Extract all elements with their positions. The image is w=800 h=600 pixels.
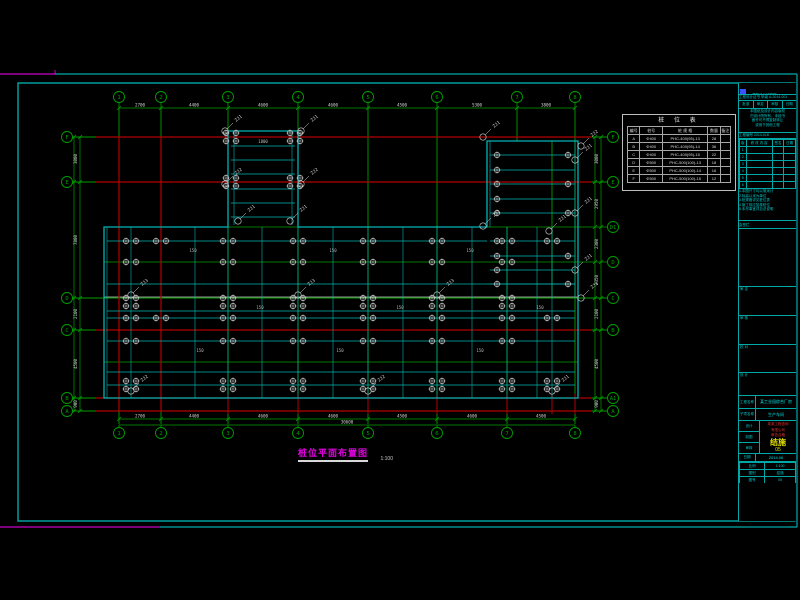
svg-text:E: E [611,180,614,186]
svg-text:D: D [611,260,614,266]
svg-text:30600: 30600 [341,420,354,425]
pile-table-cell: 22 [708,151,720,159]
role-box: 校 对 [739,345,796,373]
approval-cells: 批准审定审核日期 [739,101,796,109]
svg-text:ZJ1: ZJ1 [584,253,594,263]
role-box: 审 核 [739,316,796,345]
revision-cell [746,147,772,154]
svg-text:2: 2 [159,95,162,101]
pile-table-cell: 桩 规 格 [663,127,708,135]
svg-text:1: 1 [117,95,120,101]
pile-table-cell: Φ500 [640,167,663,175]
svg-text:5300: 5300 [472,103,483,108]
svg-text:150: 150 [196,348,204,353]
revision-cell [746,154,772,161]
svg-text:4400: 4400 [189,103,200,108]
svg-text:4: 4 [296,95,300,101]
pile-table-cell: Φ500 [640,159,663,167]
pile-table-cell: C [628,151,640,159]
svg-text:F: F [611,135,614,141]
pile-table-cell: 数量 [708,127,720,135]
svg-text:150: 150 [396,305,404,310]
revision-cell [772,175,784,182]
note-line: 5.未尽事宜详见总说明 [739,207,796,212]
pile-table-cell: B [628,143,640,151]
revision-cell [746,168,772,175]
revision-cell [784,154,796,161]
company-logo [740,89,746,95]
svg-text:E: E [65,180,68,186]
svg-text:4500: 4500 [397,103,408,108]
revision-cell [784,168,796,175]
project-name-label: 工程名称 [739,396,756,408]
svg-text:4: 4 [296,431,300,437]
pile-table-cell: 36 [708,143,720,151]
pile-table-cell: PHC-400(95)-15 [663,151,708,159]
pile-table-cell: 28 [708,135,720,143]
date-value: 2014.06 [756,455,796,460]
svg-text:150: 150 [336,348,344,353]
svg-text:ZJ1: ZJ1 [584,143,594,153]
svg-text:ZJ2: ZJ2 [310,167,320,177]
sheet-number-yellow: 05 [760,447,796,453]
subproject-value: 生产车间 [756,412,796,418]
revision-cell [772,182,784,189]
revision-cell [772,168,784,175]
stamp-line: 某某工程咨询 [760,422,796,427]
info-cell: 05 [765,477,796,484]
svg-text:ZJ3: ZJ3 [446,278,456,288]
svg-text:4500: 4500 [73,358,78,369]
svg-text:A: A [611,409,615,415]
svg-text:4600: 4600 [258,103,269,108]
pile-table-cell: E [628,167,640,175]
grid-bubbles: 1234567812345678FEDCBAFED1DCBA1A [62,92,619,439]
svg-text:ZJ1: ZJ1 [299,204,309,214]
svg-text:2100: 2100 [594,308,599,319]
svg-text:3800: 3800 [541,103,552,108]
discipline-code: 结施 [760,438,796,447]
role-box: 设 计 [739,373,796,396]
svg-text:ZJ1: ZJ1 [247,204,257,214]
pile-table-cell [720,151,730,159]
svg-text:150: 150 [476,348,484,353]
pile-table-grid: 编号桩号桩 规 格数量备注AΦ400PHC-400(95)-1328BΦ400P… [627,126,731,183]
pile-table-cell [720,143,730,151]
svg-text:3000: 3000 [73,153,78,164]
svg-text:ZJ2: ZJ2 [377,374,387,384]
svg-text:4500: 4500 [397,414,408,419]
svg-text:900: 900 [73,400,78,408]
revision-cell [772,161,784,168]
pile-table-cell: PHC-400(95)-14 [663,143,708,151]
revision-cell: 签名 [772,140,784,147]
role-label: 设 计 [740,373,748,378]
svg-text:5: 5 [366,95,369,101]
staff-label: 设计 [739,421,759,432]
stamp-area [739,229,796,287]
pile-table-cell: 备注 [720,127,730,135]
svg-text:1: 1 [117,431,120,437]
svg-text:4500: 4500 [536,414,547,419]
pile-table-cell: 16 [708,167,720,175]
pile-table-cell: PHC-400(95)-13 [663,135,708,143]
pile-table-cell: A [628,135,640,143]
svg-text:4500: 4500 [594,358,599,369]
drawing-title-text: 桩位平面布置图 [298,446,368,462]
svg-text:2700: 2700 [135,103,146,108]
svg-text:7: 7 [515,95,518,101]
role-label: 审 定 [740,287,748,292]
svg-text:A: A [65,409,69,415]
pile-table-cell: Φ400 [640,151,663,159]
svg-text:D: D [65,296,68,302]
svg-text:ZJ2: ZJ2 [492,209,502,219]
dimension-lines: 2700440046004600450053003800270044004600… [72,103,603,426]
svg-text:2350: 2350 [594,274,599,285]
info-cell: 1:100 [765,463,796,470]
svg-text:ZJ1: ZJ1 [310,114,320,124]
svg-text:ZJ1: ZJ1 [234,114,244,124]
pile-table-cell: 编号 [628,127,640,135]
review-stamp-red: 某某工程咨询有限公司审查合格 [760,422,796,438]
revision-cell: 修 改 内 容 [746,140,772,147]
revision-table: 版修 改 内 容签名日期123456 [739,139,796,189]
svg-text:ZJ3: ZJ3 [140,278,150,288]
svg-text:150: 150 [329,248,337,253]
info-cell: 比例 [740,463,765,470]
revision-cell [746,182,772,189]
staff-column: 设计制图审核 [739,421,760,453]
svg-text:1800: 1800 [258,139,268,144]
svg-text:3: 3 [226,95,229,101]
pile-table-cell [720,175,730,183]
role-box: 审 定 [739,287,796,316]
pile-table-cell: F [628,175,640,183]
revision-cell [784,147,796,154]
svg-text:ZJ2: ZJ2 [140,374,150,384]
pile-table-cell: PHC-500(100)-15 [663,175,708,183]
title-block: ××建筑设计研究院 工程设计证书 甲级 A-2014-001 批准审定审核日期 … [738,83,796,521]
pile-table-cell: D [628,159,640,167]
svg-text:F: F [65,135,68,141]
pile-table-cell [720,167,730,175]
svg-text:ZJ1: ZJ1 [561,374,571,384]
revision-cell [772,154,784,161]
svg-text:2950: 2950 [594,198,599,209]
svg-text:ZJ1: ZJ1 [584,196,594,206]
grid-lines-green [72,108,607,424]
svg-text:8: 8 [573,431,576,437]
revision-cell [784,175,796,182]
axis-lines-red [96,137,592,414]
approval-cell: 批准 [739,101,754,108]
date-label: 日期 [739,454,756,461]
subproject-label: 子项名称 [739,409,756,420]
signature-bar-label: 会签栏 [739,221,796,229]
pile-table-cell: 12 [708,175,720,183]
floor-plan-canvas: ZJ1ZJ1ZJ2ZJ2ZJ1ZJ1ZJ1ZJ2ZJ2ZJ1ZJ2ZJ3ZJ3Z… [0,0,800,600]
pile-table-cell: PHC-500(100)-14 [663,167,708,175]
beam-lines-cyan [104,131,578,398]
svg-text:6: 6 [435,431,438,437]
svg-text:150: 150 [189,248,197,253]
svg-text:2100: 2100 [73,308,78,319]
svg-text:3: 3 [226,431,229,437]
svg-text:7: 7 [505,431,508,437]
svg-text:3000: 3000 [594,153,599,164]
svg-text:4400: 4400 [189,414,200,419]
svg-text:ZJ2: ZJ2 [234,167,244,177]
svg-text:150: 150 [256,305,264,310]
svg-text:150: 150 [536,305,544,310]
info-cell: 结施 [765,470,796,477]
staff-label: 制图 [739,432,759,443]
revision-cell [784,182,796,189]
statement-line: 或用于其他工程 [739,123,796,128]
drawing-title: 桩位平面布置图 1:100 [298,443,438,462]
approval-cell: 审核 [768,101,783,108]
svg-text:D1: D1 [610,225,617,231]
svg-text:2300: 2300 [594,238,599,249]
svg-text:4600: 4600 [467,414,478,419]
pile-table-cell: Φ400 [640,135,663,143]
role-label: 审 核 [740,316,748,321]
stamp-line: 有限公司 [760,428,796,433]
role-boxes: 审 定审 核校 对设 计 [739,287,796,396]
revision-cell [746,175,772,182]
svg-text:4600: 4600 [328,103,339,108]
svg-text:A1: A1 [610,396,617,402]
svg-text:150: 150 [466,248,474,253]
pile-table-cell: PHC-500(100)-13 [663,159,708,167]
svg-text:7800: 7800 [73,234,78,245]
project-name-value: 某工业园综合厂房 [756,399,796,405]
svg-text:C: C [65,328,68,334]
revision-cell [772,147,784,154]
revision-cell: 日期 [784,140,796,147]
svg-text:4600: 4600 [328,414,339,419]
revision-cell [784,161,796,168]
svg-text:2: 2 [159,431,162,437]
info-cell: 图别 [740,470,765,477]
pile-table-cell: Φ500 [640,175,663,183]
svg-text:6: 6 [435,95,438,101]
svg-text:2700: 2700 [135,414,146,419]
svg-text:ZJ3: ZJ3 [307,278,317,288]
svg-text:C: C [611,296,614,302]
info-cell: 图号 [740,477,765,484]
pile-schedule-table: 桩 位 表 编号桩号桩 规 格数量备注AΦ400PHC-400(95)-1328… [622,114,736,191]
role-label: 校 对 [740,345,748,350]
pile-table-cell: 18 [708,159,720,167]
scale-sheet-table: 比例1:100图别结施图号05 [739,462,796,483]
svg-text:B: B [65,396,69,402]
pile-table-cell [720,159,730,167]
staff-label: 审核 [739,443,759,453]
svg-text:ZJ1: ZJ1 [492,120,502,130]
pile-table-title: 桩 位 表 [623,115,735,126]
approval-cell: 审定 [754,101,769,108]
svg-text:8: 8 [573,95,576,101]
drawing-scale: 1:100 [380,456,393,462]
pile-table-cell: Φ400 [640,143,663,151]
pile-table-cell: 桩号 [640,127,663,135]
copyright-statement: 本图纸及设计内容版权归设计院所有，未经书面许可不得复制转让或用于其他工程 [739,109,796,133]
svg-text:B: B [611,328,615,334]
svg-text:900: 900 [594,400,599,408]
svg-text:4600: 4600 [258,414,269,419]
pile-table-cell [720,135,730,143]
svg-text:5: 5 [366,431,369,437]
pile-symbols [122,129,571,392]
approval-cell: 日期 [783,101,797,108]
revision-cell [746,161,772,168]
general-notes: 1.本图尺寸均以毫米计2.标高以米为单位3.桩规格详见桩位表4.施工前应复核桩位… [739,189,796,221]
